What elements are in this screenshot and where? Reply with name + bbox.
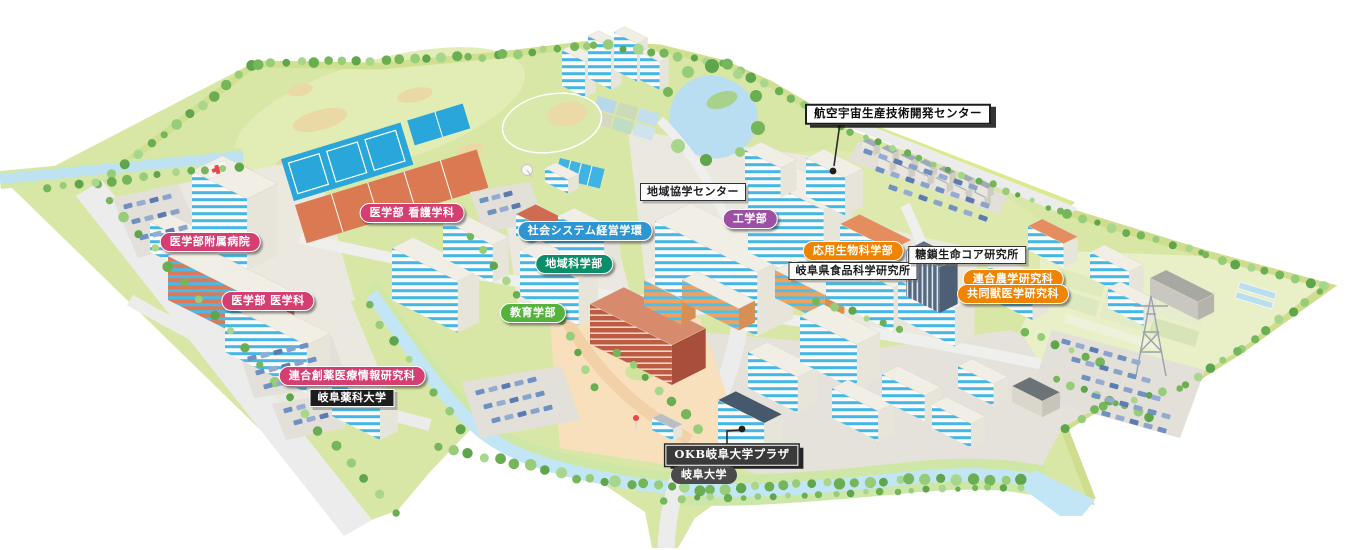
- label-hospital[interactable]: 医学部附属病院: [160, 232, 261, 252]
- label-gifu-food-science-research-institute[interactable]: 岐阜県食品科学研究所: [789, 262, 918, 280]
- label-drug-discovery[interactable]: 連合創薬医療情報研究科: [279, 366, 426, 386]
- label-education[interactable]: 教育学部: [500, 303, 566, 323]
- label-social-system-management[interactable]: 社会システム経営学環: [518, 221, 653, 241]
- leader-dot: [830, 168, 837, 175]
- label-aerospace-production-technology-center[interactable]: 航空宇宙生産技術開発センター: [805, 104, 991, 125]
- leader-dot: [739, 426, 746, 433]
- label-gifu-pharmaceutical-university[interactable]: 岐阜薬科大学: [310, 389, 395, 407]
- label-gifu-university[interactable]: 岐阜大学: [671, 466, 737, 484]
- label-applied-biological-sciences[interactable]: 応用生物科学部: [803, 241, 904, 261]
- label-medicine-nursing[interactable]: 医学部 看護学科: [360, 203, 465, 223]
- label-joint-graduate-school-of-veterinary-medicine[interactable]: 共同獣医学研究科: [957, 284, 1069, 304]
- campus-map: 医学部附属病院医学部 看護学科医学部 医学科連合創薬医療情報研究科岐阜薬科大学社…: [0, 0, 1359, 550]
- label-regional-science[interactable]: 地域科学部: [535, 254, 613, 274]
- label-engineering[interactable]: 工学部: [723, 209, 778, 229]
- label-glyco-core-research-institute[interactable]: 糖鎖生命コア研究所: [908, 246, 1026, 264]
- label-okb-gifu-university-plaza[interactable]: OKB岐阜大学プラザ: [665, 445, 798, 466]
- label-medicine-medical[interactable]: 医学部 医学科: [221, 291, 314, 311]
- label-community-cooperation-center[interactable]: 地域協学センター: [640, 183, 746, 201]
